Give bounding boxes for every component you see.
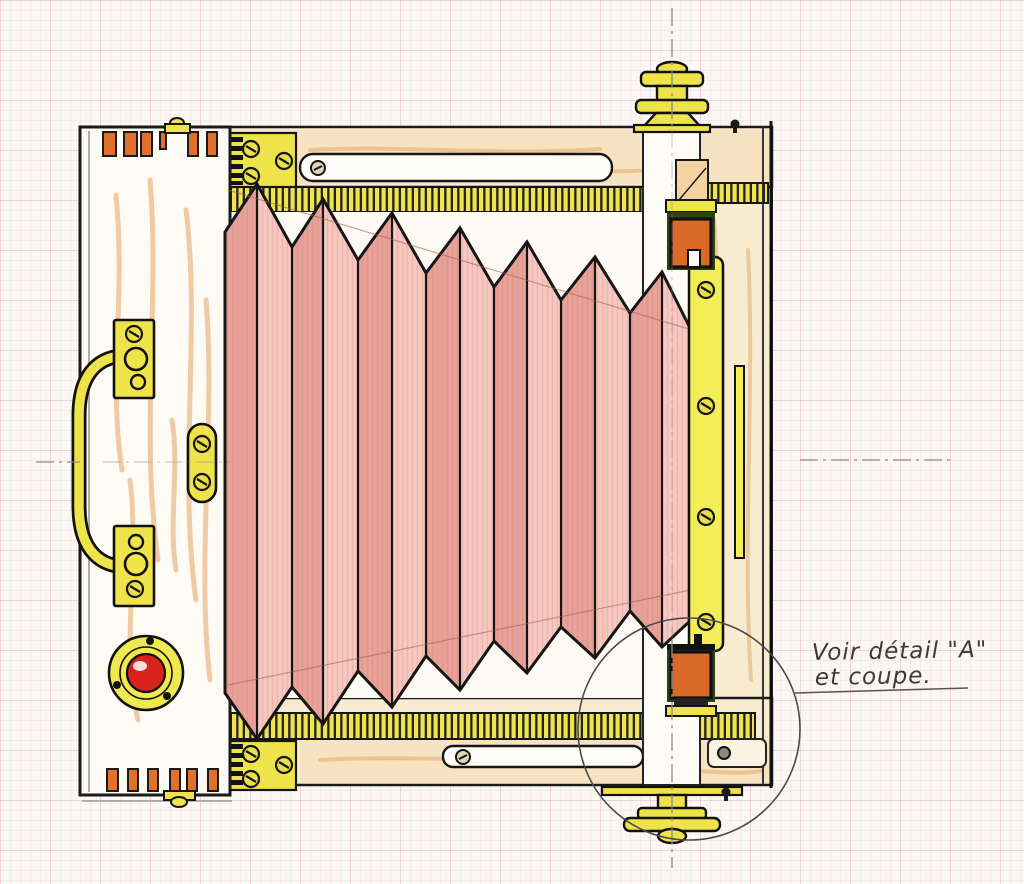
annotation-line2: et coupe. [815, 663, 932, 691]
red-button-dome [127, 654, 165, 692]
bottom-rack-rail [230, 713, 648, 739]
clamp-orange-block [671, 652, 711, 698]
top-rack-rail [230, 187, 655, 212]
latch-tab-bottom [164, 791, 195, 807]
guide-bracket [708, 739, 766, 767]
bottom-guide-slot [443, 746, 643, 767]
latch-tab-top [165, 118, 190, 133]
lens-board-edge [735, 366, 744, 558]
top-guide-slot [300, 154, 612, 181]
bottom-brass-plate [230, 741, 296, 790]
graph-paper-background: Voir détail "A" et coupe. [0, 0, 1024, 884]
handle-plate-bottom [114, 526, 154, 606]
latch-keeper-plate [188, 424, 216, 502]
handle-plate-top [114, 320, 154, 398]
camera-technical-drawing: Voir détail "A" et coupe. [0, 0, 1024, 884]
focus-knob-top [634, 62, 740, 133]
standard-brass-strip [689, 257, 723, 651]
annotation-line1: Voir détail "A" [812, 637, 988, 666]
top-brass-plate [230, 133, 296, 187]
shutter-release-button [109, 636, 183, 710]
